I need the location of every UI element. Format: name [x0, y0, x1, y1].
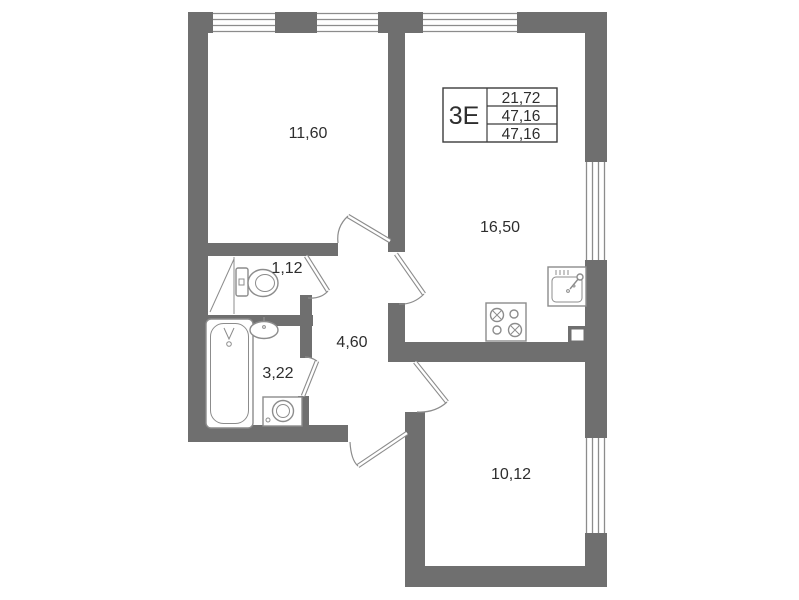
washing-machine-icon [263, 397, 302, 426]
window-right-room [587, 438, 605, 533]
info-box-value-3: 47,16 [502, 126, 541, 143]
room-label-kitchen: 16,50 [480, 219, 520, 236]
wall-top-pier [275, 12, 317, 33]
floor-plan: 11,60 16,50 1,12 3,22 4,60 10,12 3Е 21,7… [0, 0, 799, 600]
vent-shaft-icon [571, 329, 584, 341]
room-label-room1012: 10,12 [491, 466, 531, 483]
room-label-bedroom: 11,60 [289, 125, 328, 142]
door-bedroom [338, 216, 390, 243]
unit-type-label: 3Е [449, 102, 480, 130]
info-box-value-1: 21,72 [502, 90, 541, 107]
wall-connector [388, 303, 405, 344]
wall-room1012-left [405, 412, 425, 568]
door-wc [306, 256, 328, 298]
wall-bottom [405, 566, 607, 587]
floor-plan-canvas: 11,60 16,50 1,12 3,22 4,60 10,12 3Е 21,7… [0, 0, 799, 600]
window-top-3 [423, 14, 517, 32]
wall-right-upper [585, 12, 607, 162]
door-entrance [350, 433, 407, 466]
kitchen-sink-icon [548, 267, 586, 306]
wall-wc-bath-right [300, 295, 312, 358]
wall-divider-kitchen-room [388, 342, 607, 362]
wall-left [188, 12, 208, 442]
room-label-wc: 1,12 [271, 260, 302, 277]
wall-top-tee-pier [378, 12, 423, 33]
info-box-value-2: 47,16 [502, 108, 541, 125]
window-top-1 [213, 14, 275, 32]
stove-icon [486, 303, 526, 341]
window-top-2 [317, 14, 378, 32]
room-label-bathroom: 3,22 [262, 365, 293, 382]
wall-below-bedroom [188, 243, 338, 256]
bathtub-icon [206, 319, 253, 428]
door-bathroom [303, 357, 317, 396]
door-kitchen [396, 254, 424, 304]
info-box: 3Е 21,72 47,16 47,16 [443, 88, 557, 143]
door-room1012 [415, 362, 447, 412]
vent-shaft-icon [210, 257, 234, 314]
wall-interior-bedroom-kitchen [388, 33, 405, 252]
window-right-kitchen [587, 162, 605, 260]
room-label-hall: 4,60 [336, 334, 367, 351]
